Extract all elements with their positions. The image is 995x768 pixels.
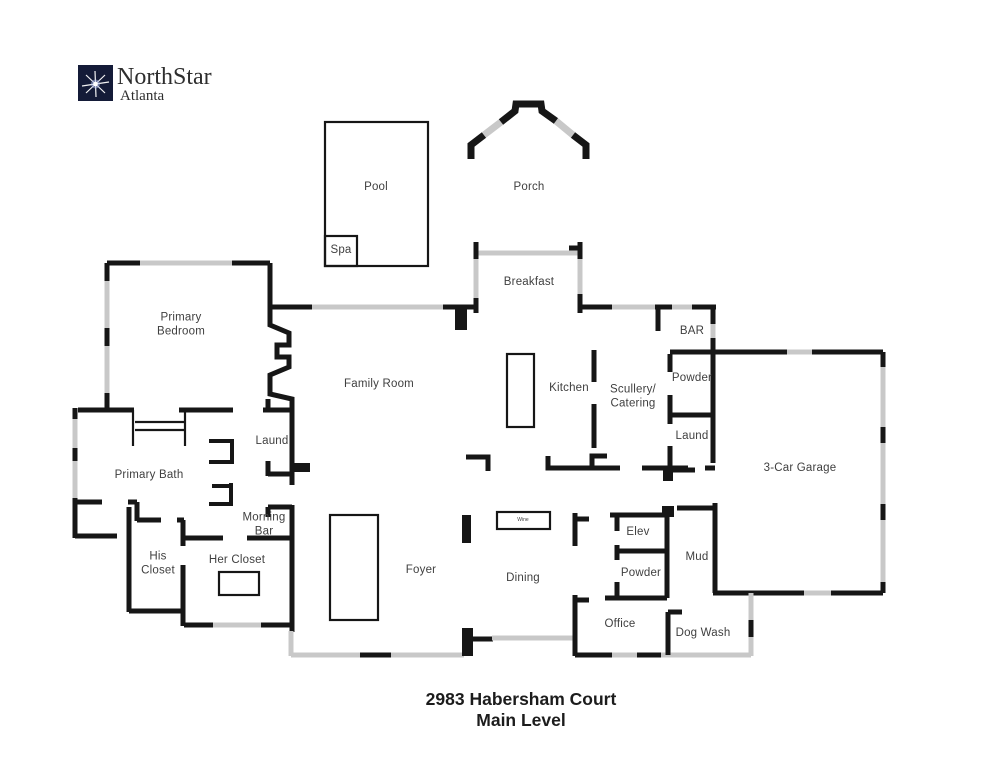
room-label-family-room: Family Room [344, 378, 414, 392]
room-label-foyer: Foyer [406, 564, 436, 578]
room-label-powder-upper: Powder [672, 372, 712, 386]
room-label-morning-bar: Morning Bar [243, 511, 286, 538]
room-label-mud: Mud [686, 551, 709, 565]
plan-title-level: Main Level [426, 710, 617, 731]
room-label-primary-bath: Primary Bath [115, 469, 184, 483]
room-label-breakfast: Breakfast [504, 276, 554, 290]
room-label-powder-lower: Powder [621, 567, 661, 581]
room-label-kitchen: Kitchen [549, 382, 589, 396]
room-label-scullery-catering: Scullery/ Catering [610, 383, 656, 410]
room-label-wine-cabinet: Wine [517, 518, 528, 524]
room-label-dining: Dining [506, 572, 540, 586]
room-label-bar: BAR [680, 325, 704, 339]
room-label-his-closet: His Closet [141, 550, 175, 577]
plan-title-address: 2983 Habersham Court [426, 689, 617, 710]
floorplan-page: NorthStar Atlanta [0, 0, 995, 768]
room-label-dog-wash: Dog Wash [676, 627, 731, 641]
room-label-garage: 3-Car Garage [764, 462, 837, 476]
room-label-office: Office [604, 618, 635, 632]
room-label-primary-bedroom: Primary Bedroom [157, 311, 205, 338]
room-label-laundry-left: Laund [256, 435, 289, 449]
room-label-porch: Porch [513, 181, 544, 195]
room-label-her-closet: Her Closet [209, 554, 265, 568]
room-label-elev: Elev [626, 526, 649, 540]
plan-title: 2983 Habersham Court Main Level [426, 689, 617, 731]
room-label-laundry-right: Laund [676, 430, 709, 444]
room-label-spa: Spa [330, 244, 351, 258]
floorplan-walls [0, 0, 995, 768]
room-label-pool: Pool [364, 181, 388, 195]
